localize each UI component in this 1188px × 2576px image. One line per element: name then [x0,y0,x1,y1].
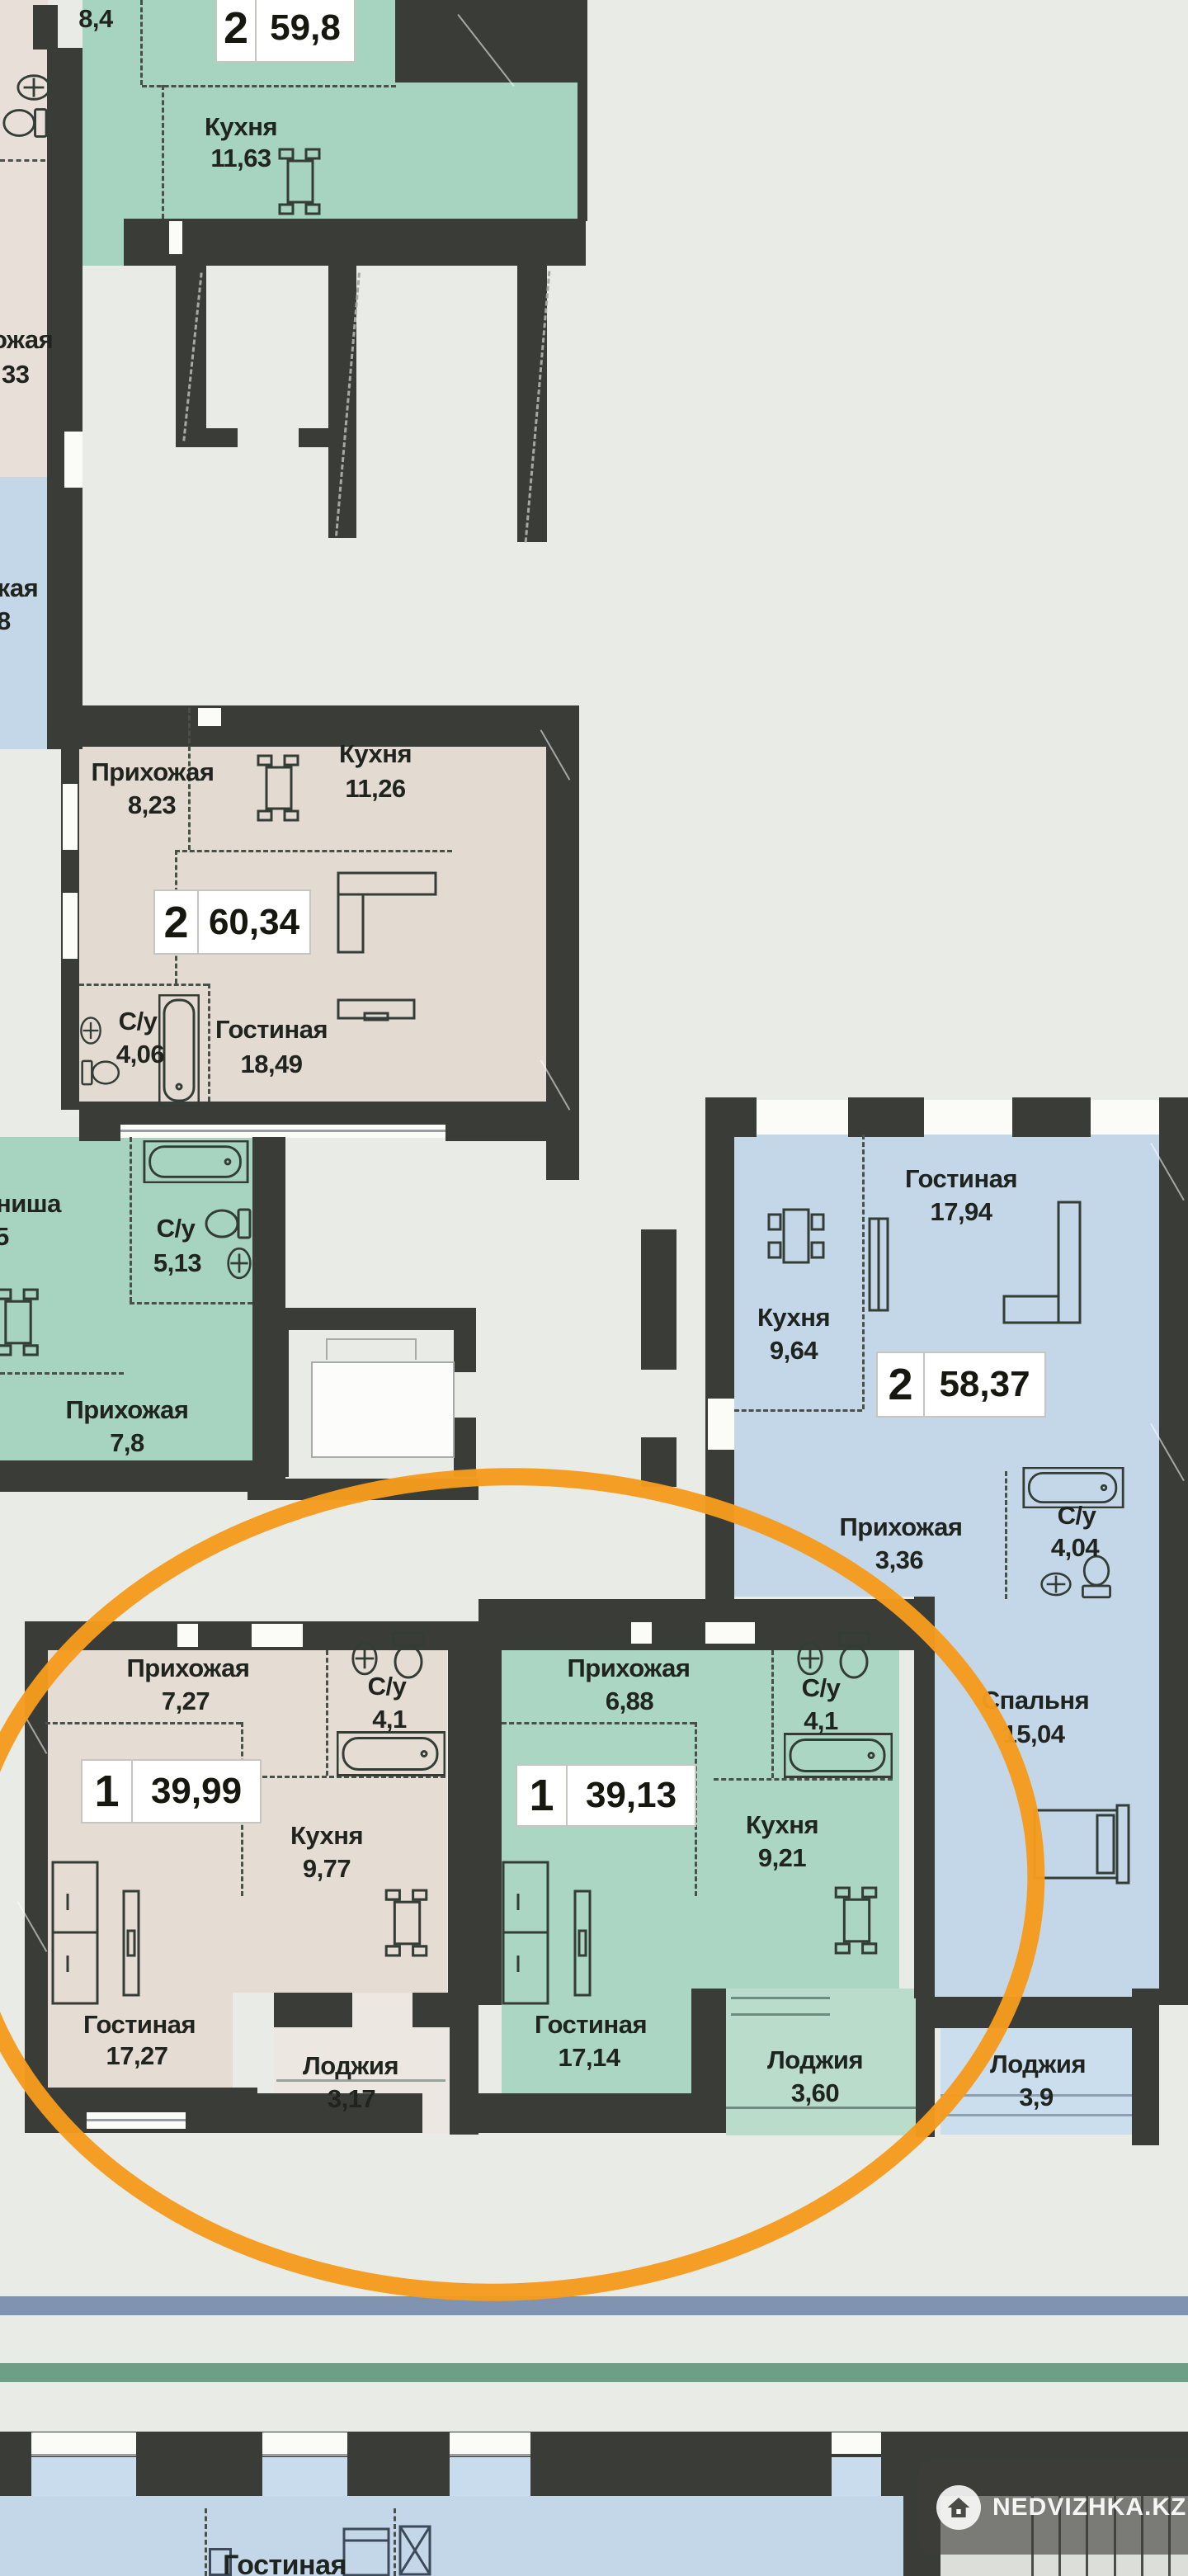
wall-loggia [450,1993,478,2135]
bed-icon [1033,1804,1130,1885]
wall-band [79,705,546,747]
door-opening [169,221,182,254]
room-area-label: 9,77 [303,1856,351,1881]
window-sill-line [262,2454,347,2456]
badge-total-area: 39,13 [568,1766,695,1825]
room-name-label: Кухня [205,114,277,139]
room-name-label: Гостиная [83,2012,196,2037]
room-name-label: Лоджия [990,2051,1086,2077]
wardrobe-icon [398,2525,431,2576]
apartment-badge: 2 58,37 [876,1352,1046,1418]
window [63,893,78,959]
sink-icon [796,1640,824,1677]
wall [577,0,587,221]
door-opening [708,1399,734,1450]
wardrobe-icon [868,1217,889,1312]
tv-icon [122,1890,140,1997]
dashed-partition [714,1778,893,1781]
wall-corridor [641,1437,676,1487]
room-area-label: 3,17 [328,2086,375,2111]
wall [1132,1989,1159,2145]
wall-stair [328,266,356,538]
room-area-label: 6,88 [606,1688,653,1714]
window [450,2432,530,2454]
room-area-label: 17,14 [558,2045,620,2070]
dashed-partition [771,1650,774,1778]
window [262,2432,347,2454]
wall [546,705,579,1180]
balcony-glazing [832,2457,881,2496]
wall-band [848,1097,924,1137]
dashed-partition [326,1650,328,1776]
wall [705,1097,734,1601]
room-area-label: 8,4 [78,6,113,31]
balcony-glazing [262,2457,347,2496]
wall-elevator [257,1308,476,1330]
room-name-label: С/у [802,1675,841,1701]
loggia-rail-line [940,2114,1132,2116]
room-area-label: 9,21 [758,1845,806,1871]
toilet-icon [202,1206,252,1241]
room-name-label-cut: Гостиная [223,2551,346,2576]
sofa-icon [1002,1201,1082,1324]
balcony-glazing [31,2457,136,2496]
loggia-glazing-line [731,2013,830,2016]
badge-rooms-count: 1 [517,1766,568,1825]
wall-loggia [274,1993,352,2027]
room-area-label-cut: 5 [0,1224,9,1249]
bathtub-icon [158,994,200,1106]
wall-band [247,1479,478,1500]
window-sill-line [31,2454,136,2456]
room-name-label: Лоджия [303,2053,398,2078]
door-opening [64,432,82,488]
room-name-label: Гостиная [215,1017,328,1042]
door-opening [252,1624,303,1647]
wall-corridor [641,1229,676,1370]
window [198,708,221,726]
dining-table-icon [825,1885,887,1956]
badge-rooms-count: 2 [878,1353,925,1416]
sink-icon [79,1012,102,1049]
badge-total-area: 60,34 [199,891,309,953]
room-area-label: 15,04 [1002,1721,1064,1747]
apartment-badge: 1 39,99 [81,1759,262,1823]
apartment-badge: 2 60,34 [153,889,311,955]
badge-total-area: 39,99 [133,1761,260,1822]
room-area-label: 4,1 [372,1706,407,1732]
room-area-label-cut: 8 [0,608,11,634]
dashed-partition [502,1722,695,1724]
decor-stripe-green [0,2363,1188,2382]
wall [691,1989,726,2133]
dining-table-icon [375,1888,437,1958]
room-name-label: С/у [1058,1503,1096,1528]
room-area-label: 3,9 [1019,2084,1054,2110]
dining-table-icon [766,1198,825,1274]
window-glazing-line [120,1130,445,1132]
window [832,2432,881,2454]
room-area-label: 4,04 [1051,1535,1099,1560]
window [31,2432,136,2454]
wall-stair [517,266,547,542]
wall [448,1650,502,2005]
dashed-partition [142,85,396,87]
window [757,1100,848,1135]
badge-total-area: 59,8 [257,0,354,61]
room-name-label: Лоджия [767,2047,863,2073]
dashed-partition [175,850,452,852]
room-name-label: С/у [119,1008,158,1034]
wall-top-dark-block [395,0,583,83]
dashed-partition [734,1409,862,1412]
elevator-mechanism [326,1338,417,1360]
room-area-label: 4,1 [804,1708,838,1734]
room-name-label: Прихожая [127,1655,250,1681]
wall [1159,1097,1188,2005]
wall-band [0,1460,285,1492]
wall [25,1621,48,2088]
room-name-label-cut: ожая [0,327,53,352]
room-area-label: 5,13 [153,1250,201,1276]
room-area-label: 11,63 [210,145,271,171]
room-area-label: 4,06 [116,1041,164,1067]
apartment-badge: 1 39,13 [516,1764,696,1827]
badge-total-area: 58,37 [925,1353,1044,1416]
wardrobe-icon [51,1861,99,2005]
watermark: NEDVIZHKA.KZ [918,2460,1188,2555]
room-name-label: Спальня [982,1687,1089,1713]
room-name-label: Кухня [746,1812,818,1838]
room-name-label: Гостиная [535,2012,647,2037]
dashed-partition [45,1722,241,1724]
bathtub-icon [337,1731,445,1776]
dining-table-icon [275,147,324,216]
room-name-label: Кухня [757,1305,830,1330]
wall-elevator [257,1308,289,1477]
dashed-partition [394,2508,396,2576]
dashed-partition [130,1137,132,1302]
dashed-partition [130,1302,252,1305]
room-name-label: Прихожая [92,759,214,785]
door-opening [631,1622,652,1644]
door-opening [705,1622,755,1644]
wall-elevator [454,1418,476,1477]
room-name-label: Прихожая [840,1514,963,1540]
room-area-label: 7,8 [110,1430,144,1455]
watermark-text: NEDVIZHKA.KZ [992,2493,1186,2522]
floor-plan-image: 8,4 Кухня 11,63 ожая 33 жая 8 Прихожая 8… [0,0,1188,2576]
window-sill-line [450,2454,530,2456]
bathtub-icon [140,1140,252,1183]
room-name-label: Прихожая [568,1655,691,1681]
dashed-partition [1005,1471,1007,1599]
sink-icon [226,1244,252,1282]
room-area-label: 8,23 [128,792,176,818]
dashed-partition [0,1372,124,1375]
room-name-label: С/у [157,1215,196,1241]
wall-band [478,2093,695,2133]
dashed-partition [205,2508,207,2576]
room-area-label: 18,49 [240,1051,302,1077]
wall [916,1989,935,2137]
window [1091,1100,1162,1135]
house-icon [936,2485,981,2530]
wall [445,1102,546,1141]
wall-elevator [454,1308,476,1372]
wardrobe-icon [502,1861,549,2005]
room-area-label: 17,94 [930,1199,992,1224]
elevator-car [311,1361,455,1458]
badge-rooms-count: 2 [217,0,257,61]
dashed-partition [208,984,210,1102]
room-bottom-floor-living [0,2496,912,2576]
room-name-label: С/у [368,1673,407,1699]
dashed-partition [79,984,208,986]
dashed-partition [0,159,45,162]
room-name-label: Гостиная [905,1166,1017,1191]
room-name-label: Прихожая [66,1397,189,1422]
tv-icon [573,1890,592,1997]
balcony-glazing [450,2457,530,2496]
window-glazing-line [87,2119,186,2121]
sofa-icon [337,871,437,954]
room-area-label: 3,60 [791,2080,839,2106]
room-area-label: 11,26 [345,776,405,801]
room-area-label: 17,27 [106,2043,167,2069]
dining-table-icon [0,1287,49,1357]
dashed-partition [162,85,164,219]
apartment-badge: 2 59,8 [215,0,356,63]
wall [914,1597,935,1998]
bathtub-icon [784,1733,893,1778]
room-blue-bedroom [935,1597,1159,1998]
wall-stair [299,428,328,447]
badge-rooms-count: 2 [155,891,199,953]
wall [33,5,58,50]
dining-table-icon [252,753,304,823]
dashed-partition [140,0,143,85]
room-area-label-cut: 33 [2,361,29,387]
loggia-glazing-line [731,1997,830,1999]
dashed-partition [862,1135,865,1409]
room-name-label: Кухня [290,1823,363,1848]
wall-band [124,219,586,266]
sink-icon [16,70,52,105]
room-area-label: 9,64 [770,1338,818,1363]
sofa-icon [342,2527,390,2576]
toilet-icon [0,106,48,140]
door-opening [177,1624,198,1647]
wall-band [935,1997,1159,2028]
sink-icon [1039,1566,1072,1602]
room-name-label-cut: ниша [0,1191,61,1216]
window [63,784,78,850]
badge-rooms-count: 1 [82,1761,133,1822]
room-area-label: 7,27 [162,1688,210,1714]
wall [47,48,82,749]
wall-band [1012,1097,1091,1137]
tv-icon [337,998,416,1023]
room-area-label: 3,36 [875,1547,923,1573]
wall [79,1102,120,1141]
room-name-label: Кухня [339,741,412,767]
window [924,1100,1012,1135]
decor-stripe-blue [0,2296,1188,2315]
room-name-label-cut: жая [0,575,38,601]
wall-loggia [412,1993,450,2027]
room-top-green-patch [82,221,124,266]
